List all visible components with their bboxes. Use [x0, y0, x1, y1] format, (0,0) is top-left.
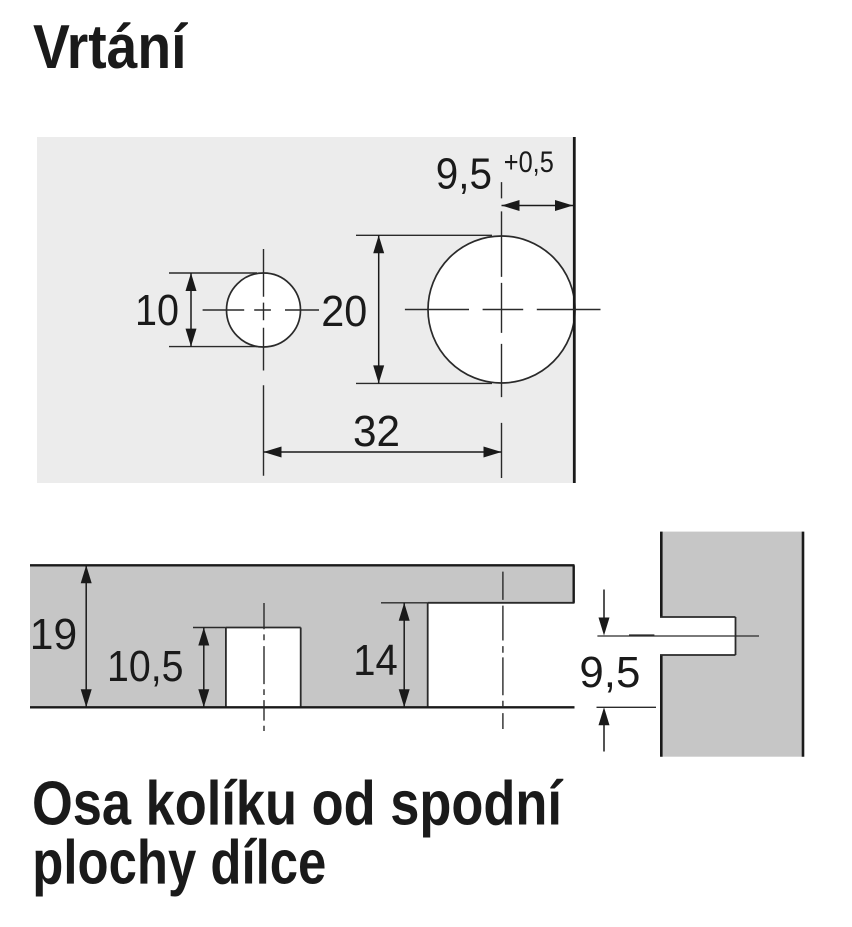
svg-text:+0,5: +0,5 — [504, 146, 554, 179]
svg-text:Vrtání: Vrtání — [33, 13, 188, 82]
svg-text:19: 19 — [30, 610, 77, 659]
svg-text:9,5: 9,5 — [579, 648, 640, 697]
svg-text:9,5: 9,5 — [436, 150, 492, 199]
svg-text:10,5: 10,5 — [107, 642, 184, 691]
svg-text:10: 10 — [135, 286, 179, 335]
svg-text:14: 14 — [353, 636, 398, 685]
svg-text:20: 20 — [321, 287, 367, 336]
svg-text:32: 32 — [353, 407, 400, 456]
svg-text:plochy dílce: plochy dílce — [32, 829, 326, 898]
